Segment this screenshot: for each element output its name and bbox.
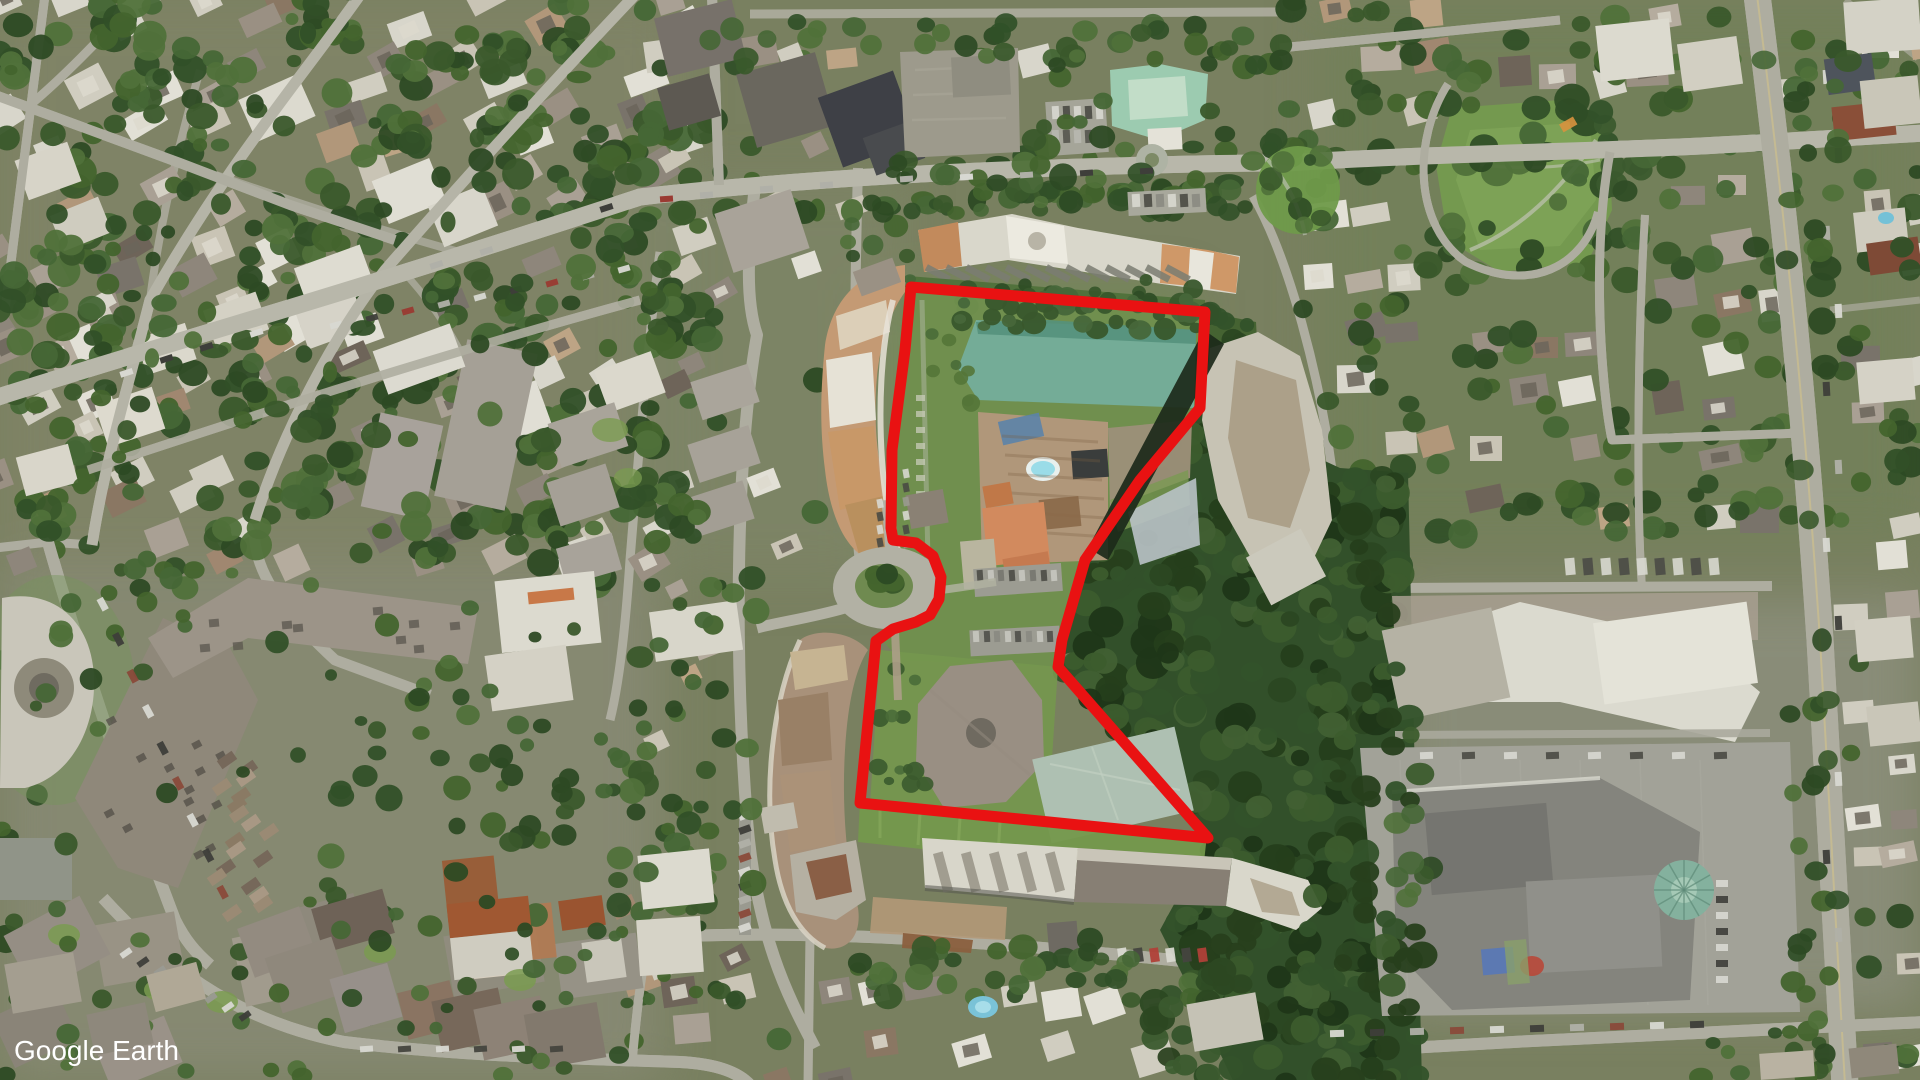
svg-text:Google Earth: Google Earth: [14, 1035, 179, 1066]
